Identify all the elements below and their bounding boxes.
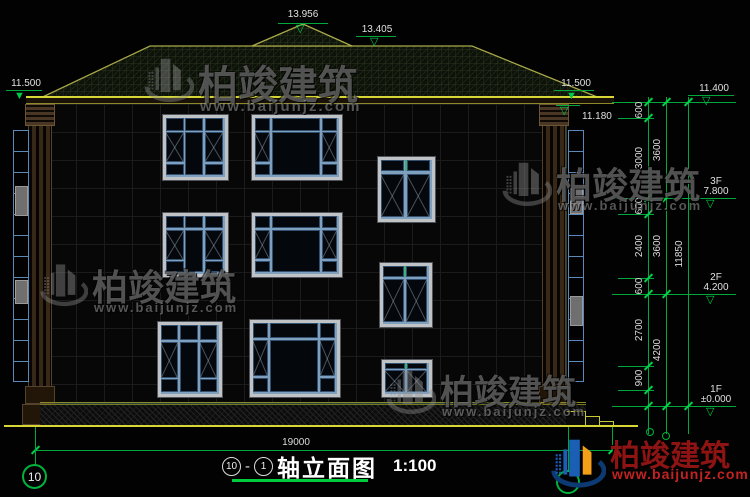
title-scale: 1:100	[393, 456, 436, 476]
title-axis-from: 10	[222, 457, 241, 476]
title-text: 轴立面图	[277, 449, 377, 483]
level-text: 11.400	[692, 84, 736, 94]
brand-logo-site: www.baijunjz.com	[612, 466, 750, 484]
window-pane	[185, 132, 203, 175]
side-sill-box-left	[15, 186, 28, 216]
window-pane	[255, 118, 270, 131]
window-pane	[255, 216, 270, 228]
elevation-drawing-canvas: 6003000600240060027009003600360042001185…	[0, 0, 750, 497]
window-pane	[320, 378, 335, 392]
window-pane	[200, 342, 217, 378]
window-pane	[205, 164, 223, 175]
window-pane	[205, 216, 223, 228]
window-pane	[180, 325, 198, 340]
window	[158, 322, 222, 397]
window-pane	[185, 216, 203, 228]
window-pane	[205, 118, 223, 131]
window-sash-grid	[253, 323, 337, 394]
window-pane	[166, 132, 184, 162]
window-pane	[185, 118, 203, 131]
axis-bubble-left: 10	[22, 464, 47, 489]
window-pane	[322, 132, 337, 162]
level-text: 13.956	[276, 10, 330, 21]
window-pane	[320, 340, 335, 376]
watermark-site-text: www.baijunjz.com	[558, 198, 750, 215]
watermark-site-text: www.baijunjz.com	[442, 404, 750, 421]
window-pane	[253, 323, 268, 338]
dimension-text: 11850	[674, 229, 686, 279]
window-pane	[270, 340, 318, 392]
brand-logo-icon	[544, 430, 606, 492]
window-pane	[161, 342, 178, 378]
watermark-logo-icon	[380, 362, 436, 418]
watermark-brand-text: 柏竣建筑	[198, 53, 598, 99]
window-pane	[161, 325, 178, 340]
level-text: 11.500	[6, 79, 46, 90]
watermark-site-text: www.baijunjz.com	[200, 98, 600, 117]
window-pane	[322, 164, 337, 175]
window-sash-grid	[255, 118, 339, 177]
window-pane	[180, 342, 198, 392]
dimension-text: 600	[634, 85, 646, 135]
window	[163, 115, 228, 180]
window-pane	[320, 323, 335, 338]
window-pane	[322, 230, 337, 259]
window-pane	[272, 216, 320, 228]
window-pane	[253, 378, 268, 392]
drawing-title: 10-1轴立面图1:100	[222, 452, 492, 480]
title-underline	[232, 479, 368, 482]
level-triangle-icon: ▽	[370, 37, 382, 47]
window-pane	[381, 160, 404, 171]
window-pane	[255, 230, 270, 259]
level-text: 4.200	[694, 283, 738, 293]
dimension-text: 3600	[652, 221, 664, 271]
watermark-brand-text: 柏竣建筑	[92, 259, 492, 301]
watermark-logo-icon	[138, 50, 194, 106]
watermark-logo-icon	[34, 256, 88, 310]
window-sash-grid	[161, 325, 219, 394]
dimension-text: 600	[634, 261, 646, 311]
window	[378, 157, 435, 222]
level-triangle-icon: ▼	[14, 91, 26, 101]
window	[250, 320, 340, 397]
window-pane	[322, 118, 337, 131]
level-triangle-icon: ▽	[296, 24, 308, 34]
window-pane	[166, 118, 184, 131]
level-text: 13.405	[354, 25, 400, 36]
window-sash-grid	[166, 118, 225, 177]
window-pane	[200, 379, 217, 392]
level-triangle-icon: ▽	[702, 96, 714, 106]
title-dash: -	[245, 458, 250, 475]
window-pane	[200, 325, 217, 340]
level-triangle-icon: ▽	[706, 295, 718, 305]
window-pane	[322, 216, 337, 228]
dimension-line	[612, 102, 736, 103]
window-pane	[166, 164, 184, 175]
side-sill-box-right	[570, 296, 583, 326]
side-window-edge-left	[13, 130, 29, 382]
window-pane	[272, 132, 320, 175]
dimension-text: 2700	[634, 305, 646, 355]
brand-logo-text: 柏竣建筑	[610, 431, 750, 467]
window-pane	[255, 164, 270, 175]
window-pane	[407, 160, 430, 171]
title-axis-to: 1	[254, 457, 273, 476]
window-pane	[381, 174, 404, 217]
side-sill-box-left	[15, 280, 28, 304]
watermark-brand-text: 柏竣建筑	[440, 365, 750, 405]
window-pane	[205, 132, 223, 162]
watermark-logo-icon	[496, 154, 552, 210]
window-pane	[166, 230, 184, 260]
dimension-line	[35, 427, 36, 465]
window-pane	[166, 216, 184, 228]
window-pane	[407, 174, 430, 217]
dimension-text: 19000	[266, 437, 326, 449]
window-pane	[255, 132, 270, 162]
window-pane	[253, 340, 268, 376]
watermark-site-text: www.baijunjz.com	[94, 300, 494, 317]
window-pane	[161, 379, 178, 392]
ground-line	[4, 425, 638, 427]
window-pane	[270, 323, 318, 338]
window-pane	[205, 230, 223, 260]
window-pane	[272, 118, 320, 131]
transom-mullion	[405, 160, 407, 171]
watermark-brand-text: 柏竣建筑	[556, 157, 750, 199]
window-sash-grid	[381, 160, 432, 219]
window	[252, 115, 342, 180]
pilaster-capital	[25, 104, 55, 126]
